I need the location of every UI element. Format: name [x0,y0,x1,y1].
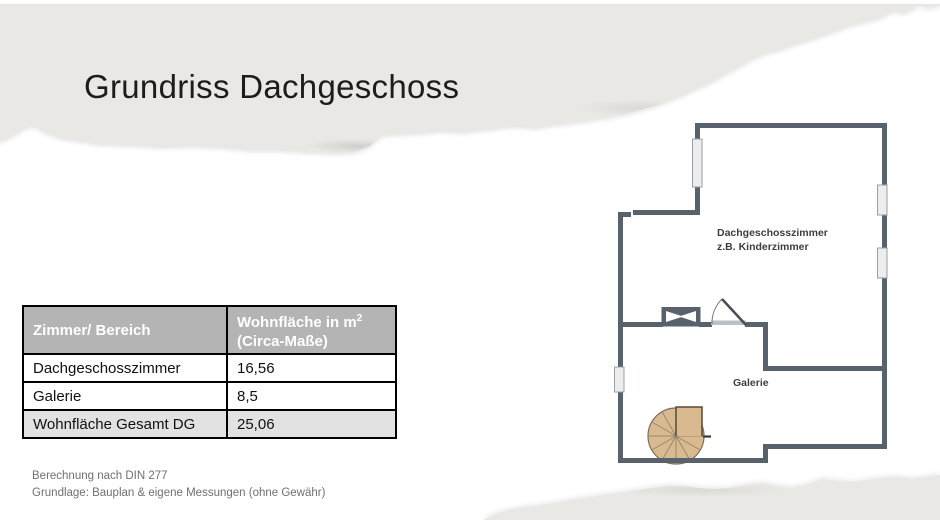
wall-left [618,212,623,463]
row-value-cell: 16,56 [227,354,396,382]
table-row: Galerie 8,5 [23,382,396,410]
door-swing [711,299,746,325]
wall-upper-left-horizontal [633,210,700,215]
row-label-cell: Galerie [23,382,227,410]
room-label-dachgeschosszimmer: Dachgeschosszimmer z.B. Kinderzimmer [717,226,828,254]
wall-bottom-right [763,444,887,449]
room-label-galerie: Galerie [733,376,769,390]
window-right-upper [878,185,888,215]
wall-galerie-top-a [618,322,663,327]
row-value-cell: 25,06 [227,410,396,438]
window-right-lower [878,248,888,278]
footnote: Berechnung nach DIN 277 Grundlage: Baupl… [32,468,325,501]
wall-top [695,123,887,128]
wall-right [882,123,887,449]
footnote-line-2: Grundlage: Bauplan & eigene Messungen (o… [32,485,325,502]
wall-bottom [618,458,768,463]
table-row-total: Wohnfläche Gesamt DG 25,06 [23,410,396,438]
spiral-staircase-icon [648,407,711,464]
wall-galerie-top-b [699,322,712,327]
footnote-line-1: Berechnung nach DIN 277 [32,468,325,485]
header-cell-area: Wohnfläche in m2 (Circa-Maße) [227,306,396,354]
windows [615,139,888,392]
window-upper-left [693,139,703,187]
table-header-row: Zimmer/ Bereich Wohnfläche in m2 (Circa-… [23,306,396,354]
wall-divider-vertical [763,322,768,371]
page-background: Grundriss Dachgeschoss [0,0,940,520]
window-left [615,367,625,392]
row-label-cell: Wohnfläche Gesamt DG [23,410,227,438]
wall-step-horizontal [768,366,887,371]
table-row: Dachgeschosszimmer 16,56 [23,354,396,382]
row-value-cell: 8,5 [227,382,396,410]
stair-railing-icon [662,307,701,327]
row-label-cell: Dachgeschosszimmer [23,354,227,382]
walls [618,123,887,463]
floorplan-drawing [0,0,940,520]
header-cell-room: Zimmer/ Bereich [23,306,227,354]
area-table: Zimmer/ Bereich Wohnfläche in m2 (Circa-… [22,305,397,439]
